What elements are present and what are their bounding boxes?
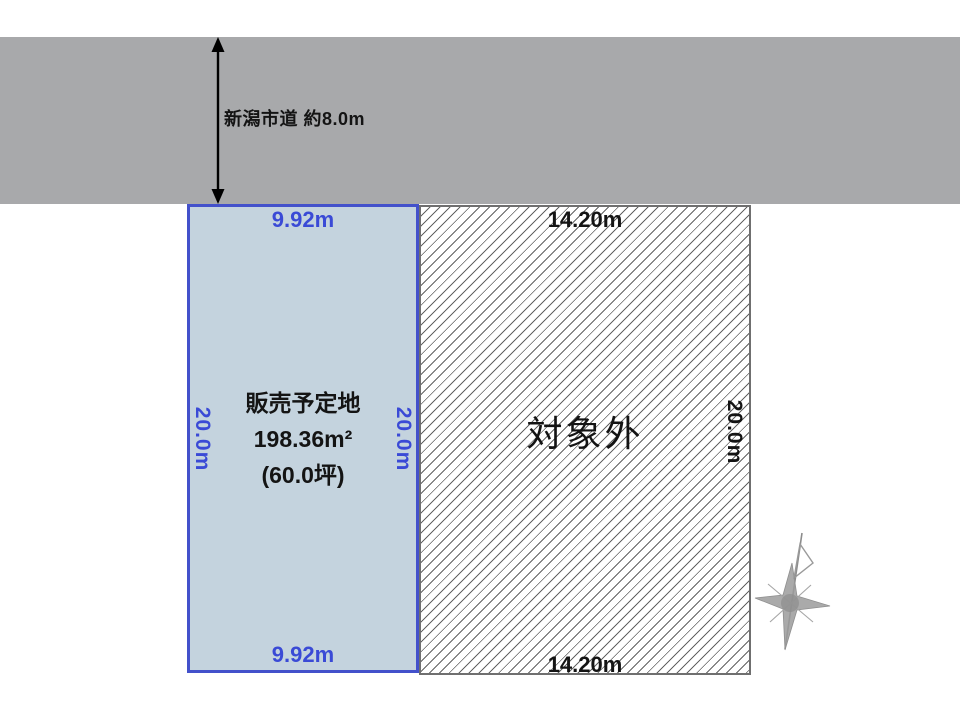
road-band [0,37,960,204]
excluded-plot: 14.20m 14.20m 20.0m 対象外 [419,205,751,675]
road-label: 新潟市道 約8.0m [224,105,365,131]
land-plot-diagram: 新潟市道 約8.0m 9.92m 9.92m 20.0m 20.0m 販売予定地… [0,0,960,720]
excluded-plot-label: 対象外 [526,405,643,457]
sale-plot-caption: 販売予定地 198.36m² (60.0坪) [190,385,416,493]
sale-plot-area-tsubo: (60.0坪) [190,457,416,493]
compass-north-icon [745,520,840,665]
excluded-plot-width-bottom-label: 14.20m [548,653,623,677]
sale-plot: 9.92m 9.92m 20.0m 20.0m 販売予定地 198.36m² (… [187,204,419,673]
sale-plot-width-top-label: 9.92m [272,208,334,232]
excluded-plot-depth-right-label: 20.0m [722,400,746,465]
sale-plot-width-bottom-label: 9.92m [272,643,334,667]
excluded-plot-width-top-label: 14.20m [548,208,623,232]
sale-plot-area-sqm: 198.36m² [190,421,416,457]
sale-plot-title: 販売予定地 [190,385,416,421]
